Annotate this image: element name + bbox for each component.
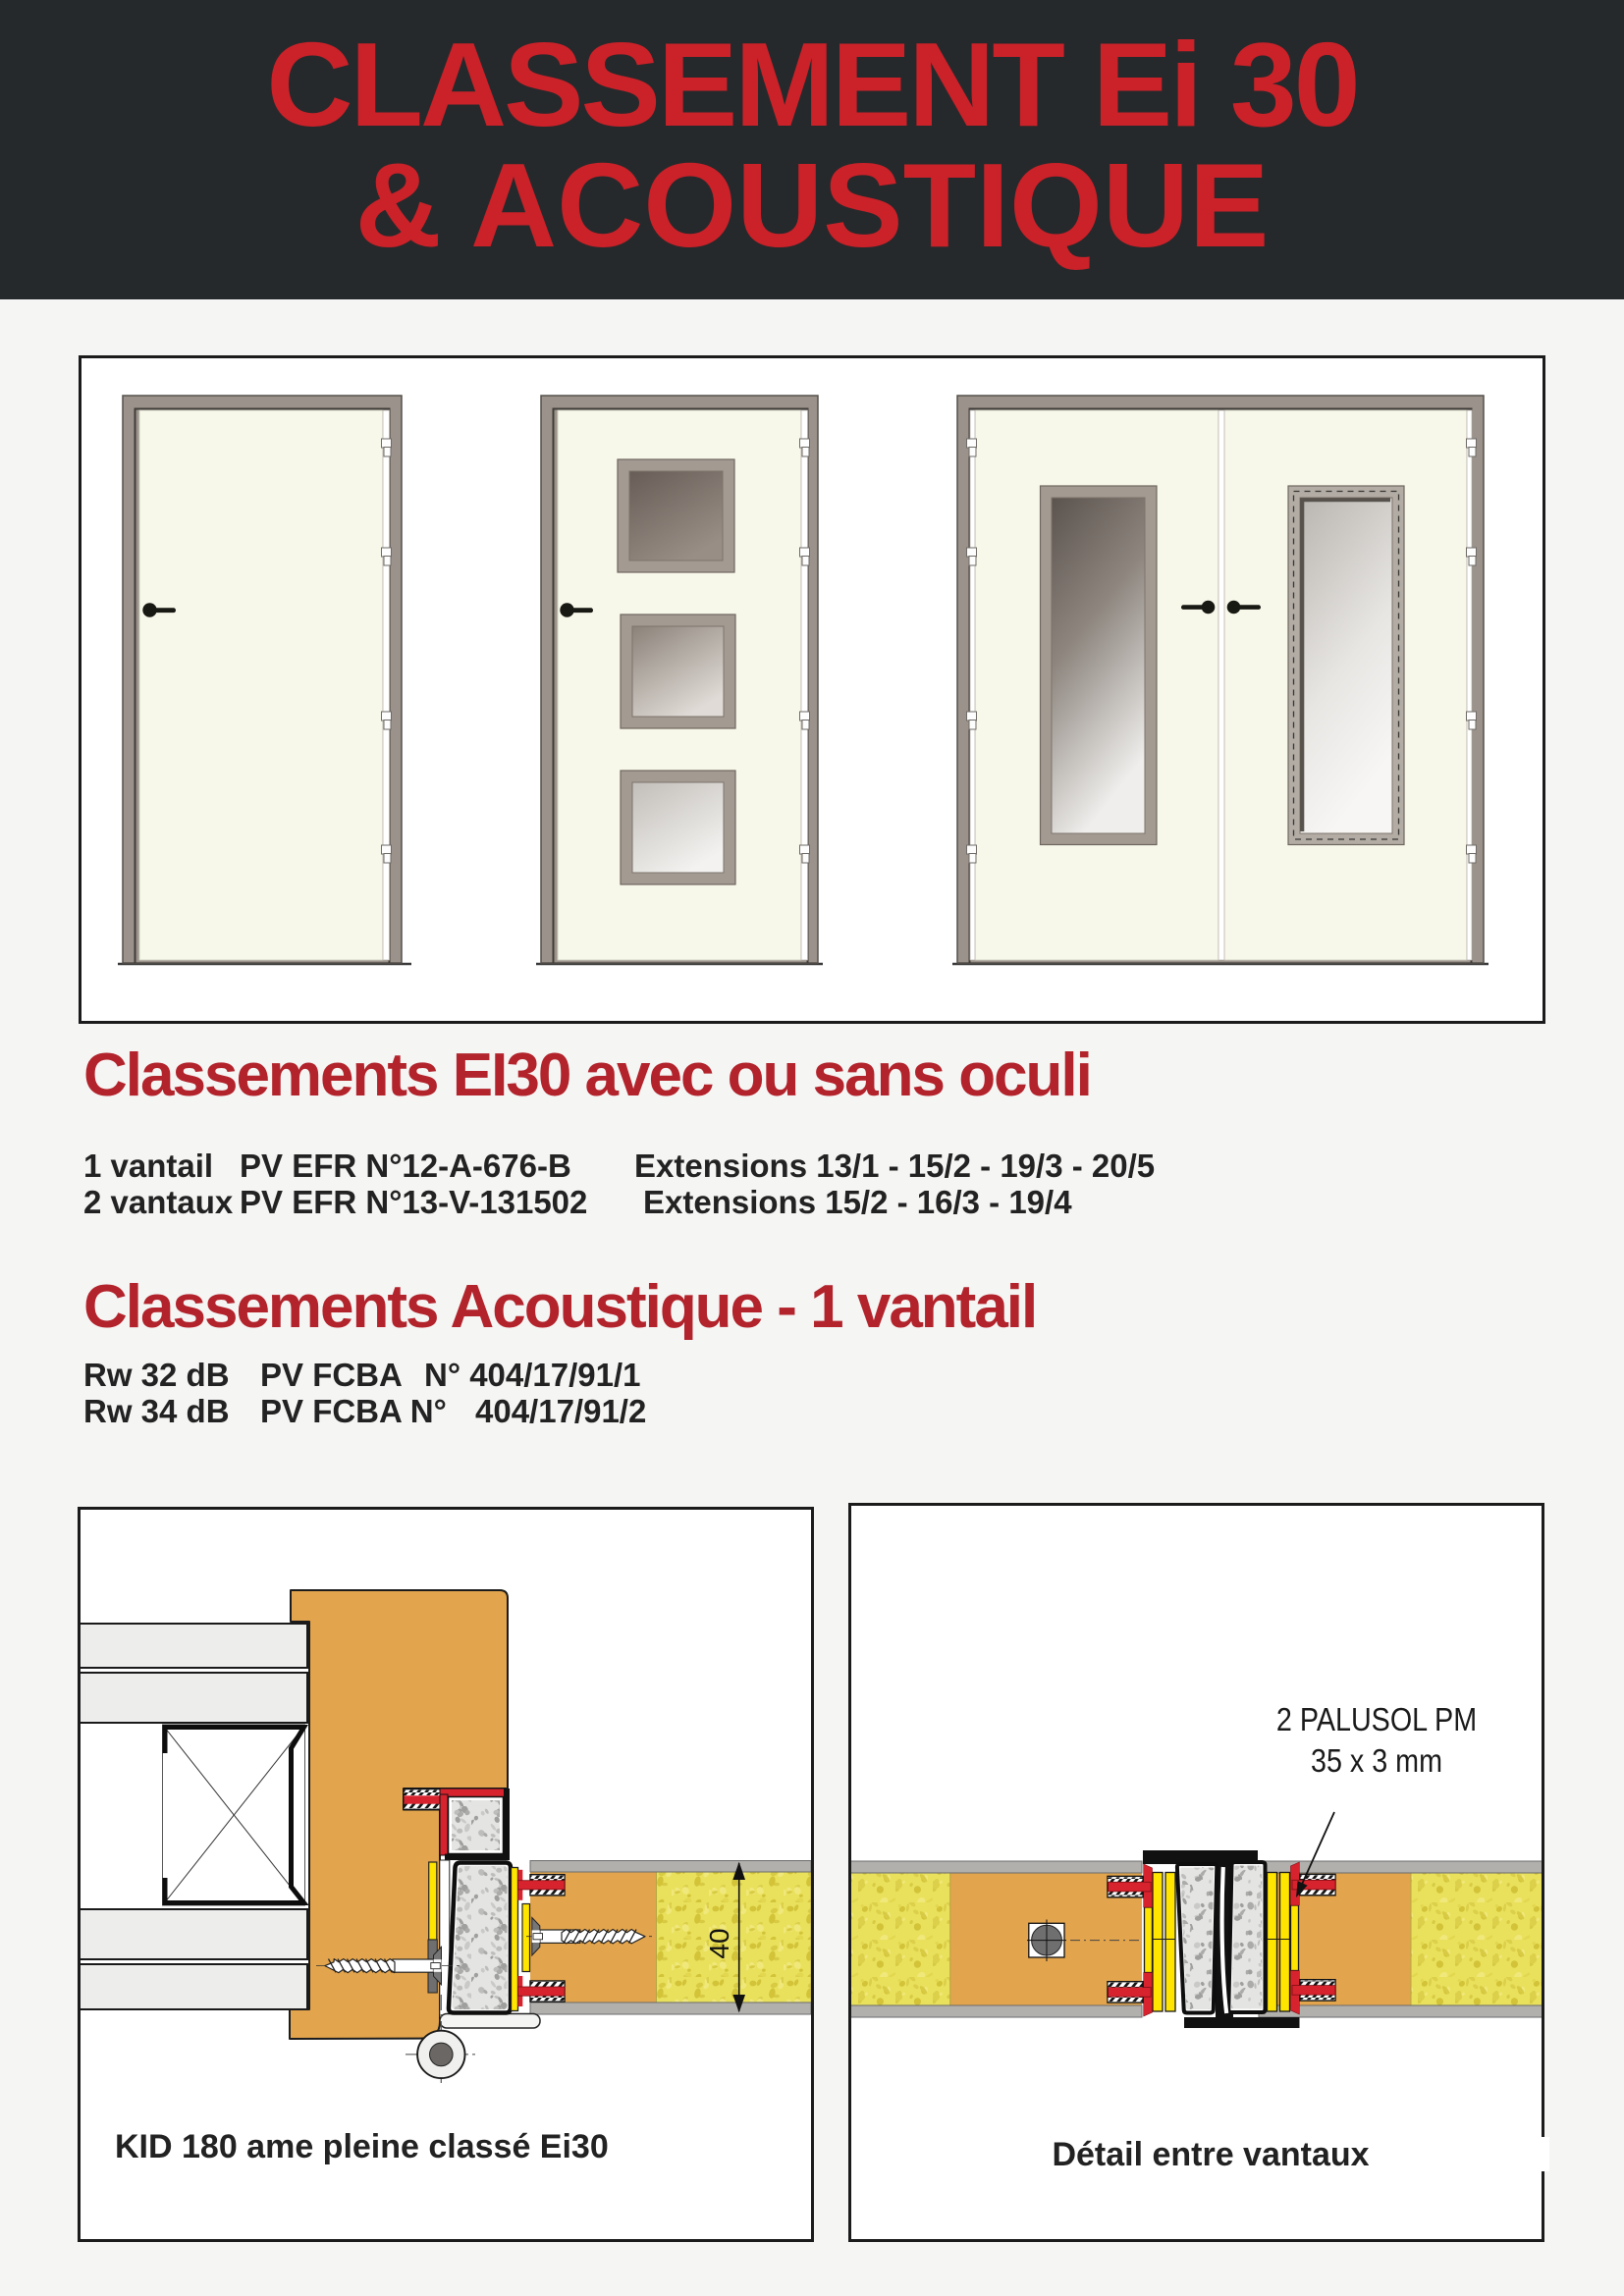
svg-text:40: 40 xyxy=(704,1928,734,1958)
